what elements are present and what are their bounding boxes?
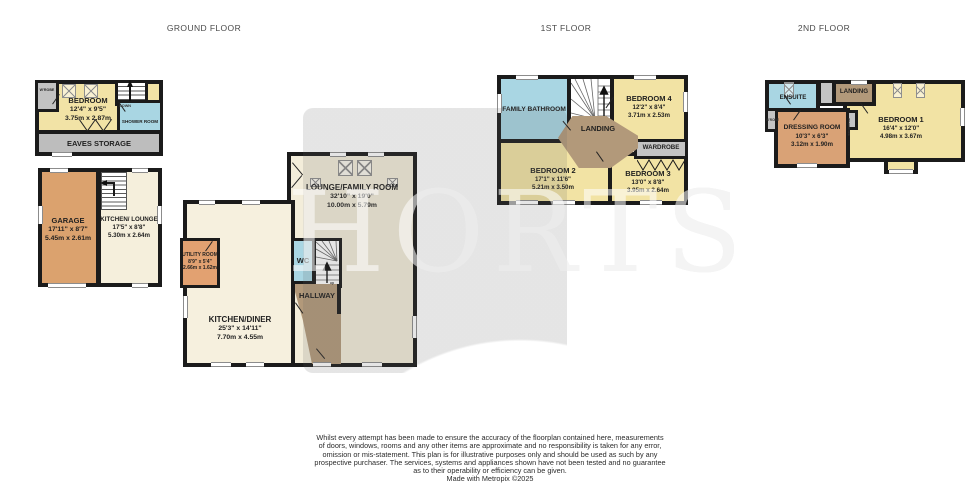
- roof-window-icon: [893, 83, 902, 98]
- window-marker: [634, 75, 656, 80]
- window-marker: [640, 200, 662, 205]
- disclaimer: Whilst every attempt has been made to en…: [230, 434, 750, 483]
- first-floor-title: 1ST FLOOR: [541, 23, 592, 33]
- window-marker: [553, 200, 575, 205]
- landing-second-label: LANDING: [840, 88, 868, 96]
- hallway-label: HALLWAY: [299, 291, 335, 301]
- lounge-label: LOUNGE/FAMILY ROOM 32'10" x 19'0" 10.00m…: [306, 183, 398, 211]
- stairs-direction-label: DOWN: [119, 104, 131, 108]
- stairs-winder-icon: [571, 79, 610, 121]
- wardrobe-tiny-label: WARDROBE: [847, 118, 851, 136]
- stairs-arrow-icon: [129, 86, 131, 101]
- window-marker: [362, 362, 382, 367]
- roof-window-icon: [357, 160, 372, 176]
- stairs-arrow-icon: [113, 182, 115, 196]
- bedroom1-label: BEDROOM 1 16'4" x 12'0" 4.98m x 3.67m: [878, 115, 923, 141]
- window-marker: [38, 206, 43, 224]
- ground-floor-title: GROUND FLOOR: [167, 23, 241, 33]
- window-marker: [851, 80, 867, 85]
- window-marker: [52, 152, 72, 157]
- window-marker: [683, 92, 688, 112]
- stairs-main: [313, 238, 342, 288]
- landing-first-label: LANDING: [581, 124, 615, 134]
- window-marker: [889, 169, 913, 174]
- window-marker: [183, 296, 188, 318]
- annexe-wardrobe-label: W'ROBE: [40, 88, 55, 93]
- annexe-shower-label: SHOWER ROOM: [122, 119, 158, 125]
- window-marker: [797, 163, 817, 168]
- dressing-room-label: DRESSING ROOM 10'3" x 6'3" 3.12m x 1.90m: [784, 124, 841, 149]
- kitchen-diner-label: KITCHEN/DINER 25'3" x 14'11" 7.70m x 4.5…: [209, 315, 272, 343]
- stairs-arrow-icon: [106, 182, 115, 184]
- window-marker: [157, 206, 162, 224]
- window-marker: [960, 108, 965, 126]
- utility-label: UTILITY ROOM 8'9" x 5'4" 2.66m x 1.62m: [182, 252, 218, 272]
- window-marker: [199, 200, 215, 205]
- garage-door-marker: [48, 283, 86, 288]
- window-marker: [211, 362, 231, 367]
- window-marker: [368, 152, 384, 157]
- window-marker: [242, 200, 260, 205]
- window-marker: [246, 362, 264, 367]
- floorplan-canvas: HORTS GROUND FLOOR 1ST FLOOR 2ND FLOOR D…: [0, 0, 980, 483]
- stairs-winder-icon: [316, 241, 339, 285]
- window-marker: [516, 75, 538, 80]
- window-marker: [330, 152, 346, 157]
- stairs-arrow-icon: [100, 180, 107, 186]
- kitchen-lounge-label: KITCHEN/ LOUNGE 17'5" x 8'8" 5.30m x 2.6…: [100, 216, 157, 240]
- window-marker: [412, 316, 417, 338]
- family-bathroom-label: FAMILY BATHROOM: [502, 106, 566, 115]
- garage-label: GARAGE 17'11" x 8'7" 5.45m x 2.61m: [45, 216, 91, 243]
- wrobe-tiny-label: W'ROBE: [766, 118, 779, 122]
- window-marker: [516, 200, 538, 205]
- ensuite-label: ENSUITE: [780, 94, 807, 102]
- window-marker: [132, 168, 148, 173]
- annexe-eaves-label: EAVES STORAGE: [67, 139, 131, 149]
- annexe-bedroom-label: BEDROOM 12'4" x 9'5" 3.75m x 2.87m: [65, 96, 111, 123]
- wardrobe-first-label: WARDROBE: [643, 144, 680, 152]
- wc-label: WC: [297, 256, 310, 266]
- window-marker: [50, 168, 68, 173]
- bedroom3-label: BEDROOM 3 13'0" x 8'8" 3.95m x 2.64m: [625, 169, 670, 195]
- window-marker: [132, 283, 148, 288]
- roof-window-icon: [916, 83, 925, 98]
- second-floor-title: 2ND FLOOR: [798, 23, 850, 33]
- stairs-direction-label: up: [330, 281, 334, 285]
- bedroom4-label: BEDROOM 4 12'2" x 8'4" 3.71m x 2.53m: [626, 94, 671, 120]
- bedroom2-label: BEDROOM 2 17'1" x 11'6" 5.21m x 3.50m: [530, 166, 575, 192]
- room-annexe-wardrobe: [35, 80, 59, 112]
- wall-segment: [337, 284, 341, 314]
- window-marker: [313, 362, 331, 367]
- roof-window-icon: [338, 160, 353, 176]
- disclaimer-line: Made with Metropix ©2025: [230, 475, 750, 483]
